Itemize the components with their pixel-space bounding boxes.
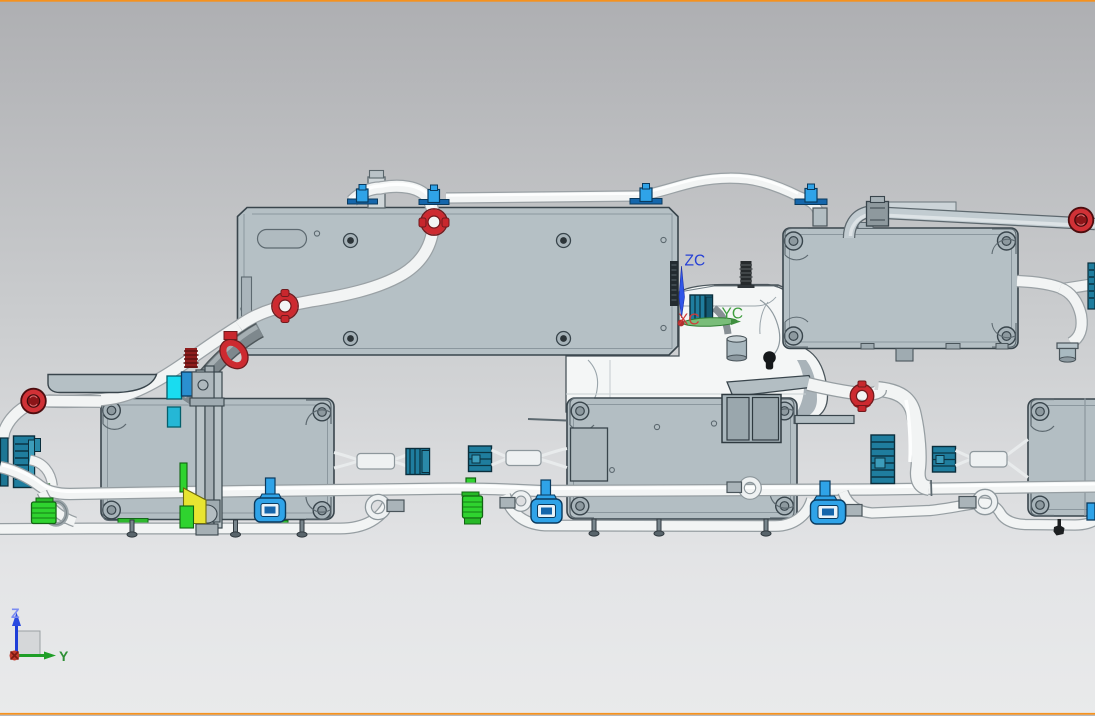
- svg-text:ZC: ZC: [685, 253, 706, 270]
- svg-text:Z: Z: [11, 605, 20, 621]
- svg-text:YC: YC: [722, 306, 744, 323]
- svg-text:XC: XC: [678, 312, 700, 329]
- svg-text:Y: Y: [59, 648, 69, 664]
